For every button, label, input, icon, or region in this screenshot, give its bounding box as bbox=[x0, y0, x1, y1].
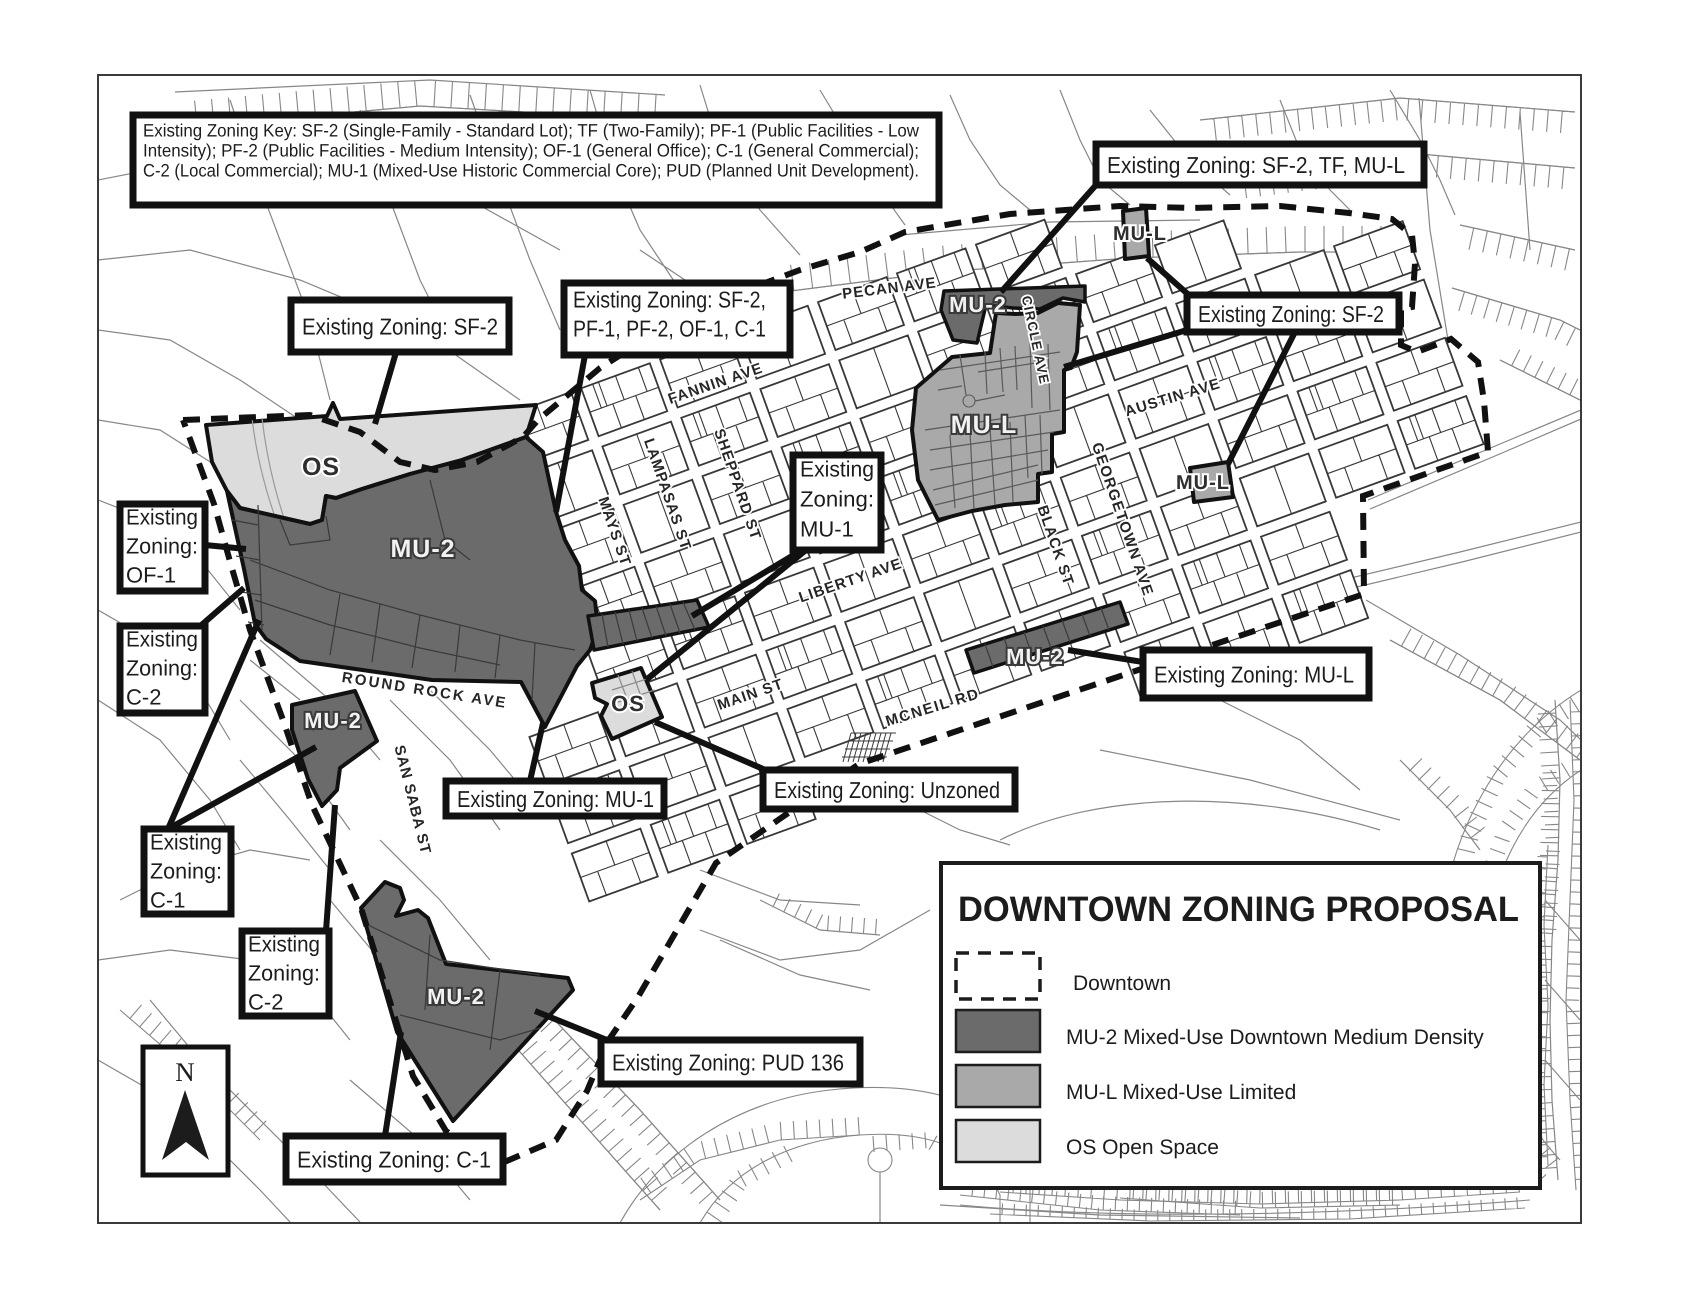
svg-text:Zoning:: Zoning: bbox=[150, 859, 222, 884]
svg-text:MU-L: MU-L bbox=[1176, 472, 1230, 494]
svg-text:OS: OS bbox=[611, 691, 645, 716]
svg-text:C-1: C-1 bbox=[150, 888, 185, 913]
svg-text:Existing Zoning: SF-2,: Existing Zoning: SF-2, bbox=[573, 286, 766, 312]
svg-text:Existing: Existing bbox=[150, 830, 222, 855]
svg-text:MU-2: MU-2 bbox=[427, 984, 485, 1009]
svg-text:MU-2: MU-2 bbox=[304, 708, 362, 733]
svg-text:PF-1, PF-2, OF-1, C-1: PF-1, PF-2, OF-1, C-1 bbox=[573, 315, 766, 341]
svg-text:OF-1: OF-1 bbox=[126, 563, 176, 588]
svg-text:OS Open Space: OS Open Space bbox=[1066, 1136, 1219, 1159]
svg-text:OS: OS bbox=[302, 453, 340, 481]
svg-text:Existing Zoning: SF-2, TF, MU-: Existing Zoning: SF-2, TF, MU-L bbox=[1107, 152, 1405, 178]
svg-text:MU-L: MU-L bbox=[1113, 223, 1167, 245]
svg-text:Zoning:: Zoning: bbox=[248, 961, 320, 986]
svg-text:Existing Zoning Key: SF-2 (Sin: Existing Zoning Key: SF-2 (Single-Family… bbox=[143, 120, 920, 140]
svg-text:Existing Zoning: C-1: Existing Zoning: C-1 bbox=[297, 1146, 491, 1172]
svg-text:MU-L: MU-L bbox=[951, 411, 1017, 439]
svg-text:C-2: C-2 bbox=[126, 685, 161, 710]
svg-text:MU-1: MU-1 bbox=[800, 517, 854, 542]
svg-text:C-2 (Local Commercial); MU-1 (: C-2 (Local Commercial); MU-1 (Mixed-Use … bbox=[143, 160, 919, 180]
svg-text:Intensity); PF-2 (Public Facil: Intensity); PF-2 (Public Facilities - Me… bbox=[143, 140, 919, 160]
svg-text:MU-2 Mixed-Use Downtown Medium: MU-2 Mixed-Use Downtown Medium Density bbox=[1066, 1026, 1484, 1049]
svg-text:Existing: Existing bbox=[126, 627, 198, 652]
svg-text:MU-L Mixed-Use Limited: MU-L Mixed-Use Limited bbox=[1066, 1081, 1296, 1104]
svg-text:Existing Zoning: Unzoned: Existing Zoning: Unzoned bbox=[774, 777, 1000, 803]
svg-text:Zoning:: Zoning: bbox=[800, 487, 874, 512]
svg-text:Existing: Existing bbox=[126, 505, 198, 530]
svg-text:C-2: C-2 bbox=[248, 990, 283, 1015]
svg-text:N: N bbox=[175, 1057, 195, 1087]
svg-text:Existing Zoning: SF-2: Existing Zoning: SF-2 bbox=[302, 313, 498, 339]
svg-text:Existing Zoning: PUD 136: Existing Zoning: PUD 136 bbox=[612, 1049, 844, 1075]
svg-text:Existing Zoning: MU-1: Existing Zoning: MU-1 bbox=[457, 786, 654, 812]
svg-text:Existing Zoning: MU-L: Existing Zoning: MU-L bbox=[1154, 661, 1354, 687]
svg-text:Existing: Existing bbox=[248, 932, 320, 957]
svg-text:Downtown: Downtown bbox=[1073, 972, 1171, 995]
svg-text:Existing Zoning: SF-2: Existing Zoning: SF-2 bbox=[1198, 301, 1384, 327]
svg-text:DOWNTOWN ZONING PROPOSAL: DOWNTOWN ZONING PROPOSAL bbox=[958, 889, 1519, 929]
svg-text:MU-2: MU-2 bbox=[390, 535, 455, 563]
svg-text:Existing: Existing bbox=[800, 457, 874, 482]
svg-text:Zoning:: Zoning: bbox=[126, 534, 198, 559]
svg-text:MU-2: MU-2 bbox=[949, 292, 1007, 317]
svg-text:MU-2: MU-2 bbox=[1006, 644, 1064, 669]
svg-text:Zoning:: Zoning: bbox=[126, 656, 198, 681]
